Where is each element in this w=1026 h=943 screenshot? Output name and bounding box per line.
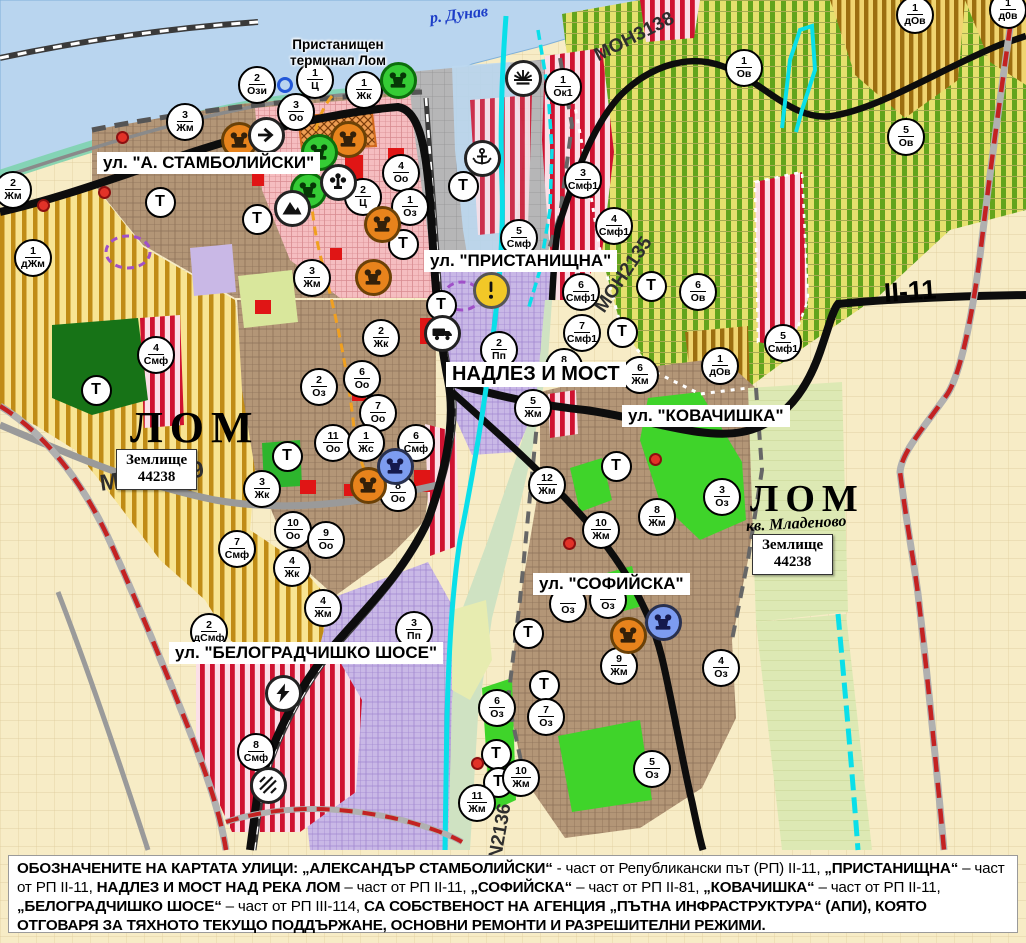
caption-segment: – част от РП II-81, (572, 879, 703, 896)
caption-segment: „ПРИСТАНИЩНА“ (824, 860, 958, 877)
caption-segment: НАДЛЕЗ И МОСТ НАД РЕКА ЛОМ (97, 879, 341, 896)
caption-segment: ОБОЗНАЧЕНИТЕ НА КАРТАТА УЛИЦИ: „АЛЕКСАНД… (17, 860, 553, 877)
caption-segment: – част от РП II-11, (340, 879, 470, 896)
street-sofiyska: ул. "СОФИЙСКА" (533, 573, 690, 595)
river-danube: р. Дунав (429, 3, 489, 28)
road-ii-11: II-11 (883, 274, 938, 309)
street-belogradchishko: ул. "БЕЛОГРАДЧИШКО ШОСЕ" (169, 642, 443, 664)
caption-segment: – част от РП II-11, (814, 879, 940, 896)
caption-segment: „БЕЛОГРАДЧИШКО ШОСЕ“ (17, 898, 222, 915)
city-lom-2: ЛОМ (750, 480, 865, 518)
zoning-map: 2Жм2Ози1Ц1Жк3Оо3Жм4Оо2Ц1Оз1дЖм3Жм4Смф2Жк… (0, 0, 1026, 943)
map-caption: ОБОЗНАЧЕНИТЕ НА КАРТАТА УЛИЦИ: „АЛЕКСАНД… (8, 855, 1018, 933)
caption-segment: – част от РП III-114, (222, 898, 364, 915)
street-pristanishtna: ул. "ПРИСТАНИЩНА" (424, 250, 617, 272)
suburb-mladenovo: кв. Младеново (746, 513, 847, 536)
street-nadlez-i-most: НАДЛЕЗ И МОСТ (446, 362, 626, 387)
caption-segment: „СОФИЙСКА“ (470, 879, 572, 896)
road-mon2135: MOH2135 (591, 233, 658, 317)
street-kovachishka: ул. "КОВАЧИШКА" (622, 405, 790, 427)
port-terminal: Пристанищен терминал Лом (290, 37, 386, 68)
caption-segment: - част от Републикански път (РП) II-11, (553, 860, 825, 877)
boxed-zemlishte-1: Землище 44238 (116, 449, 197, 490)
boxed-zemlishte-2: Землище 44238 (752, 534, 833, 575)
caption-segment: „КОВАЧИШКА“ (703, 879, 814, 896)
road-mon3138: MOH3138 (591, 8, 678, 67)
city-lom-1: ЛОМ (130, 406, 260, 450)
labels-layer: р. ДунавПристанищен терминал Ломул. "А. … (0, 0, 1026, 943)
road-n2136: N2136 (485, 802, 516, 861)
street-stamboliyski: ул. "А. СТАМБОЛИЙСКИ" (97, 152, 320, 174)
